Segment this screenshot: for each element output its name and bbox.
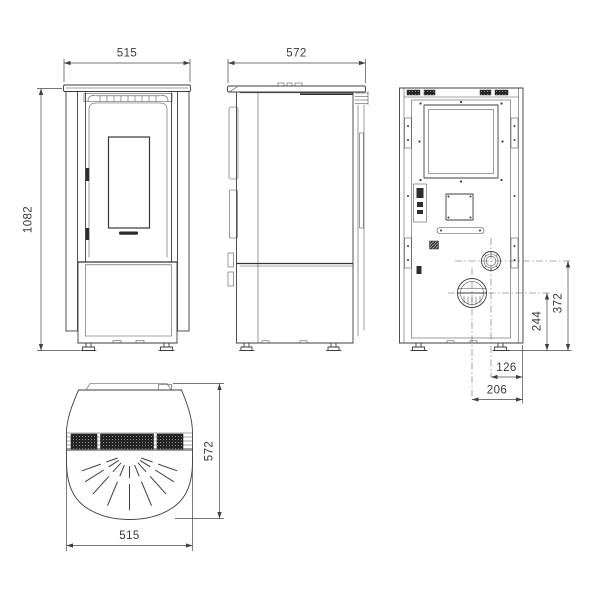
rear-foot-right <box>493 343 509 351</box>
brand-logo <box>119 232 138 235</box>
side-pedestal <box>237 264 354 344</box>
rear-access-plate <box>446 194 473 220</box>
dim-air-height: 244 <box>532 293 548 351</box>
rear-view: 372 244 126 206 <box>400 88 572 404</box>
dim-air-offset: 206 <box>472 385 523 400</box>
side-top-tabs <box>230 83 302 92</box>
dim-front-height: 1082 <box>23 89 81 351</box>
front-pedestal <box>78 262 177 343</box>
front-top-grille <box>84 94 172 102</box>
side-body-outline <box>237 92 365 343</box>
door-glass-window <box>109 137 150 228</box>
dim-label-front-height: 1082 <box>23 206 35 233</box>
rear-rating-label <box>430 241 439 249</box>
rear-lower-slat <box>437 228 484 234</box>
rear-foot-left <box>411 343 427 351</box>
dim-side-depth: 572 <box>228 48 366 84</box>
side-rear-slot <box>360 133 364 228</box>
air-diffuser-slots <box>82 458 177 510</box>
door-hinge-upper <box>86 168 89 181</box>
side-foot-front <box>240 343 255 351</box>
dim-label-side-depth: 572 <box>286 48 306 60</box>
side-view: 572 <box>228 48 369 351</box>
technical-drawing-sheet: 515 1082 <box>0 0 600 600</box>
dim-front-width: 515 <box>64 48 190 83</box>
front-foot-right <box>159 343 174 351</box>
dim-label-front-width: 515 <box>117 48 137 60</box>
rear-power-inlet <box>414 184 427 274</box>
rear-upper-opening <box>418 101 503 183</box>
front-foot-left <box>81 343 96 351</box>
rear-bottom <box>447 341 477 343</box>
dim-label-flue-height: 372 <box>553 293 565 313</box>
dim-top-depth: 572 <box>173 384 224 519</box>
centerlines <box>448 238 571 400</box>
dim-label-air-height: 244 <box>532 311 544 332</box>
side-top-plate <box>228 86 366 92</box>
rear-top-vent-slots <box>407 90 508 95</box>
dim-label-flue-offset: 126 <box>496 362 516 374</box>
dim-label-top-depth: 572 <box>204 441 216 461</box>
dim-label-air-offset: 206 <box>487 385 507 397</box>
stove-dimension-drawing: 515 1082 <box>0 0 600 600</box>
front-side-columns <box>66 92 189 332</box>
dim-label-top-width: 515 <box>119 530 139 542</box>
top-view: 572 515 <box>67 384 225 552</box>
side-rear-louver <box>355 92 368 229</box>
front-door <box>86 93 172 262</box>
side-foot-rear <box>327 343 342 351</box>
front-view: 515 1082 <box>23 48 191 351</box>
door-hinge-lower <box>86 228 89 240</box>
top-grille-band <box>67 433 193 450</box>
rear-outer-frame <box>400 88 524 343</box>
